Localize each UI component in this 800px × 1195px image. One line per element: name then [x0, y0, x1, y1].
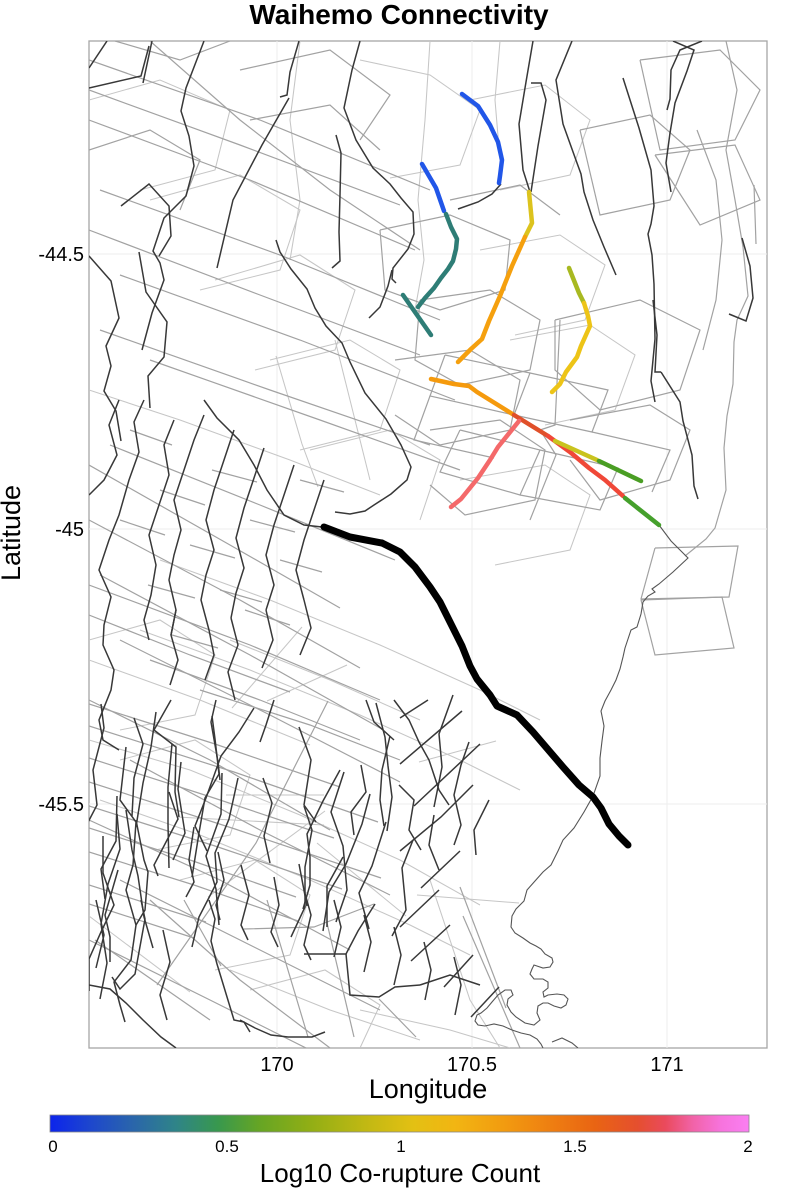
- svg-text:1: 1: [396, 1137, 405, 1156]
- svg-text:-45: -45: [55, 519, 84, 541]
- svg-text:171: 171: [650, 1054, 683, 1076]
- svg-text:0: 0: [48, 1137, 57, 1156]
- svg-text:-45.5: -45.5: [38, 794, 84, 816]
- svg-text:-44.5: -44.5: [38, 244, 84, 266]
- svg-text:Longitude: Longitude: [369, 1074, 488, 1104]
- svg-text:Waihemo Connectivity: Waihemo Connectivity: [249, 0, 549, 30]
- svg-text:0.5: 0.5: [215, 1137, 239, 1156]
- svg-text:Latitude: Latitude: [0, 485, 26, 581]
- svg-text:170.5: 170.5: [447, 1054, 497, 1076]
- svg-text:1.5: 1.5: [563, 1137, 587, 1156]
- svg-text:Log10 Co-rupture Count: Log10 Co-rupture Count: [260, 1158, 541, 1188]
- svg-text:170: 170: [260, 1054, 293, 1076]
- svg-text:2: 2: [743, 1137, 752, 1156]
